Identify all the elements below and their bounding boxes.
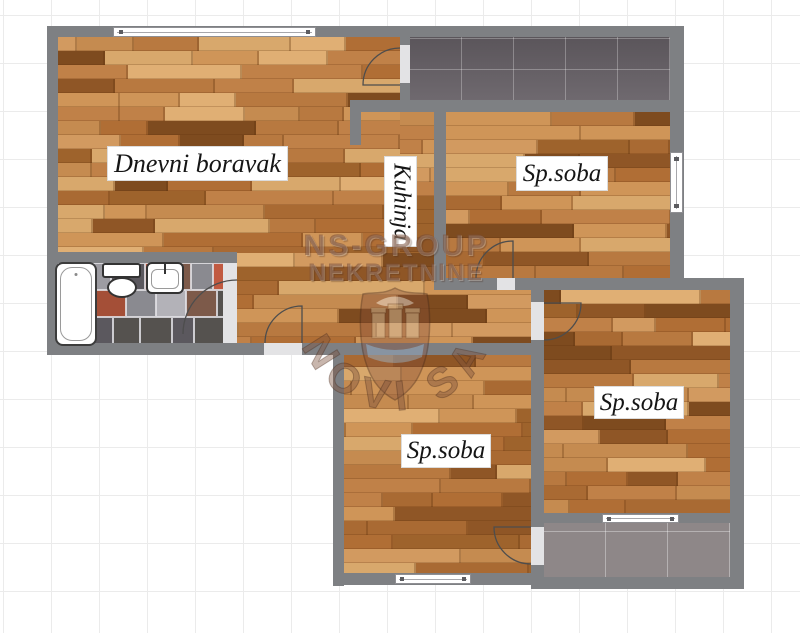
door-opening-terrace bbox=[400, 45, 410, 83]
door-opening-bedroom-bottom-right bbox=[531, 302, 544, 340]
window-bedroom-top-right bbox=[670, 152, 683, 213]
floor-living-room bbox=[58, 37, 400, 253]
window-tick bbox=[674, 204, 679, 208]
window-line bbox=[117, 32, 312, 33]
room-label-living: Dnevni boravak bbox=[107, 146, 288, 181]
window-tick bbox=[674, 157, 679, 161]
window-tick bbox=[462, 577, 466, 581]
floor-plan-canvas: NOVI SAD Dnevni boravak Kuhinja Sp.soba … bbox=[0, 0, 800, 633]
room-label-living-text: Dnevni boravak bbox=[114, 149, 281, 179]
watermark-line2: NEKRETNINE bbox=[296, 259, 496, 287]
wall bbox=[333, 343, 344, 586]
window-bedroom-bottom-right bbox=[602, 514, 679, 523]
room-label-bedroom-bottom-right-text: Sp.soba bbox=[600, 389, 678, 417]
window-tick bbox=[306, 30, 310, 34]
room-label-bedroom-top-right-text: Sp.soba bbox=[523, 160, 601, 188]
window-bedroom-bottom-middle bbox=[395, 574, 471, 584]
bathtub bbox=[55, 262, 97, 346]
sink-faucet bbox=[164, 263, 166, 274]
bathtub-basin bbox=[60, 267, 92, 341]
wall bbox=[400, 83, 410, 100]
door-opening-balcony bbox=[531, 527, 544, 565]
window-tick bbox=[607, 517, 611, 521]
wall bbox=[730, 278, 744, 589]
window-living-room bbox=[113, 27, 316, 37]
door-opening-entrance bbox=[264, 343, 302, 355]
door-opening-bedroom-top-right bbox=[497, 278, 515, 290]
wall bbox=[531, 577, 744, 589]
window-tick bbox=[119, 30, 123, 34]
window-line bbox=[399, 579, 467, 580]
toilet-tank bbox=[102, 263, 141, 278]
bathtub-drain bbox=[75, 273, 78, 276]
sink bbox=[146, 262, 184, 294]
wall bbox=[531, 278, 744, 290]
window-line bbox=[606, 518, 675, 519]
wall bbox=[350, 100, 684, 112]
toilet-bowl bbox=[107, 277, 137, 298]
window-tick bbox=[400, 577, 404, 581]
room-label-bedroom-bottom-middle-text: Sp.soba bbox=[407, 437, 485, 465]
terrace-bottom bbox=[544, 523, 730, 577]
room-label-bedroom-bottom-middle: Sp.soba bbox=[401, 434, 491, 468]
terrace-top bbox=[410, 37, 670, 100]
door-opening-bathroom bbox=[223, 263, 237, 343]
wall bbox=[350, 100, 361, 145]
window-line bbox=[676, 156, 677, 209]
window-tick bbox=[670, 517, 674, 521]
room-label-bedroom-bottom-right: Sp.soba bbox=[594, 386, 684, 419]
room-label-bedroom-top-right: Sp.soba bbox=[516, 156, 608, 191]
watermark-line1: NS-GROUP bbox=[296, 229, 496, 263]
